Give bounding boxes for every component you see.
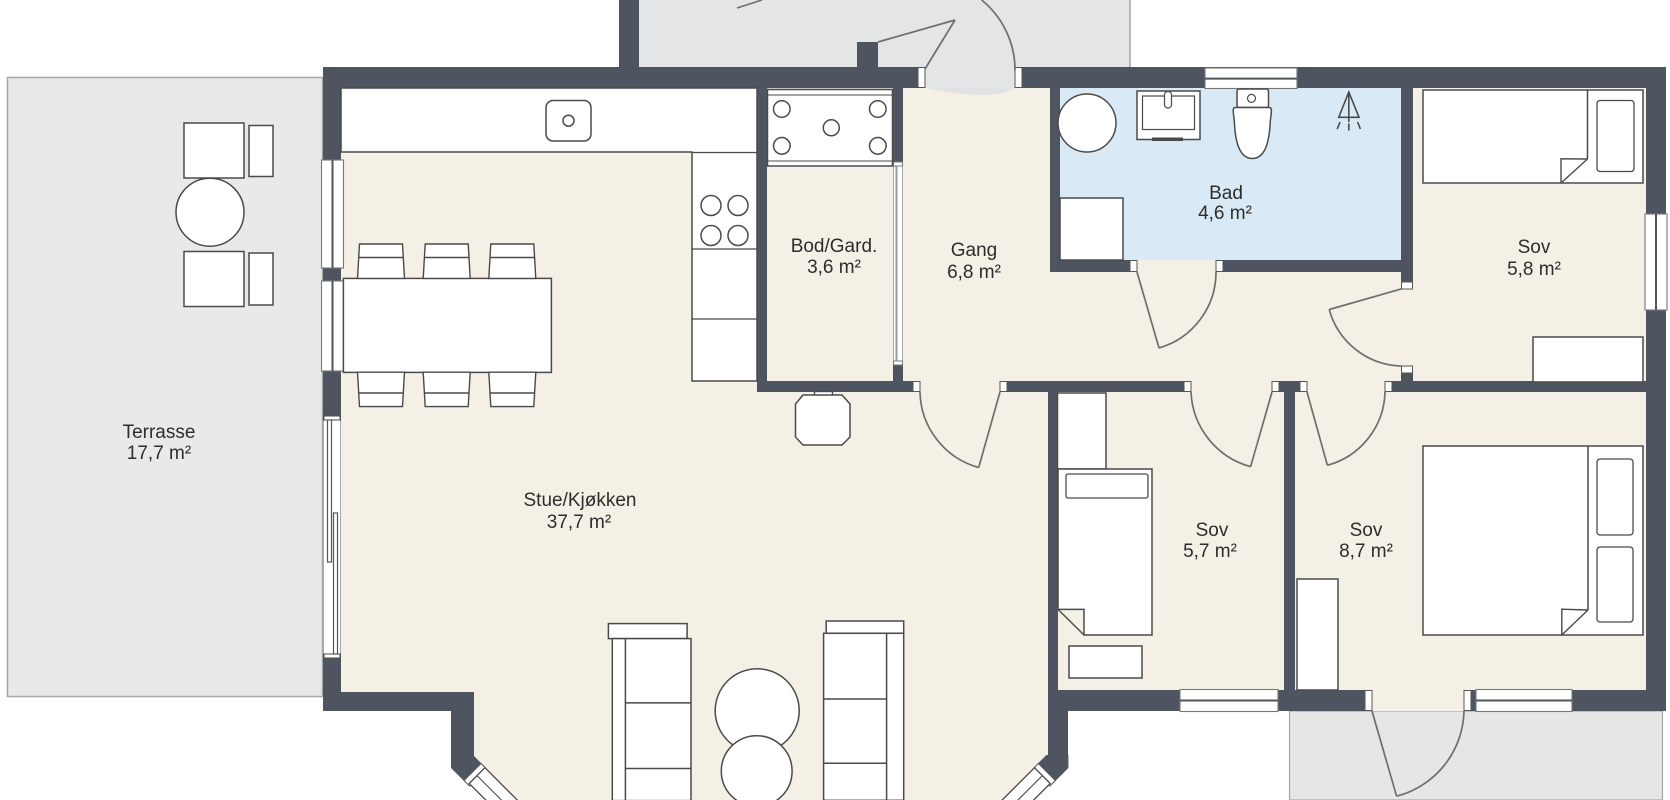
svg-text:Sov: Sov (1350, 520, 1383, 541)
svg-text:Gang: Gang (951, 240, 997, 261)
svg-text:8,7 m²: 8,7 m² (1339, 541, 1393, 562)
svg-text:Sov: Sov (1518, 237, 1551, 258)
svg-text:Terrasse: Terrasse (123, 422, 196, 443)
svg-text:Sov: Sov (1196, 520, 1229, 541)
svg-text:Bad: Bad (1209, 183, 1243, 204)
svg-text:3,6 m²: 3,6 m² (807, 257, 861, 278)
svg-text:5,8 m²: 5,8 m² (1507, 259, 1561, 280)
svg-text:6,8 m²: 6,8 m² (947, 262, 1001, 283)
svg-text:37,7 m²: 37,7 m² (547, 512, 611, 533)
svg-text:17,7 m²: 17,7 m² (127, 443, 191, 464)
svg-text:5,7 m²: 5,7 m² (1183, 541, 1237, 562)
svg-text:4,6 m²: 4,6 m² (1198, 203, 1252, 224)
svg-text:Stue/Kjøkken: Stue/Kjøkken (524, 490, 637, 511)
svg-text:Bod/Gard.: Bod/Gard. (791, 236, 878, 257)
